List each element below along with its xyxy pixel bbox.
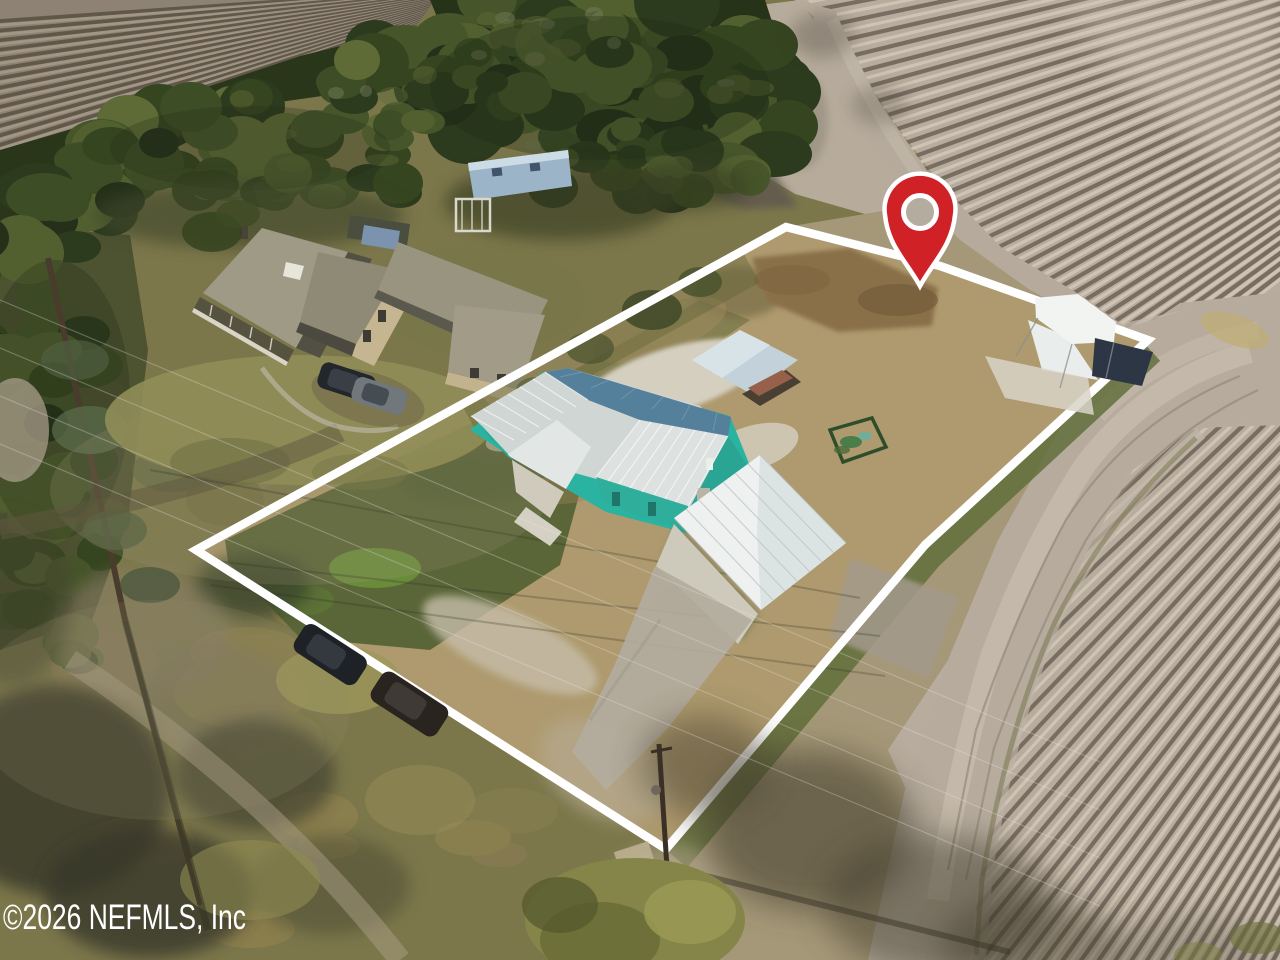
svg-text:©2026 NEFMLS, Inc: ©2026 NEFMLS, Inc bbox=[3, 898, 246, 937]
